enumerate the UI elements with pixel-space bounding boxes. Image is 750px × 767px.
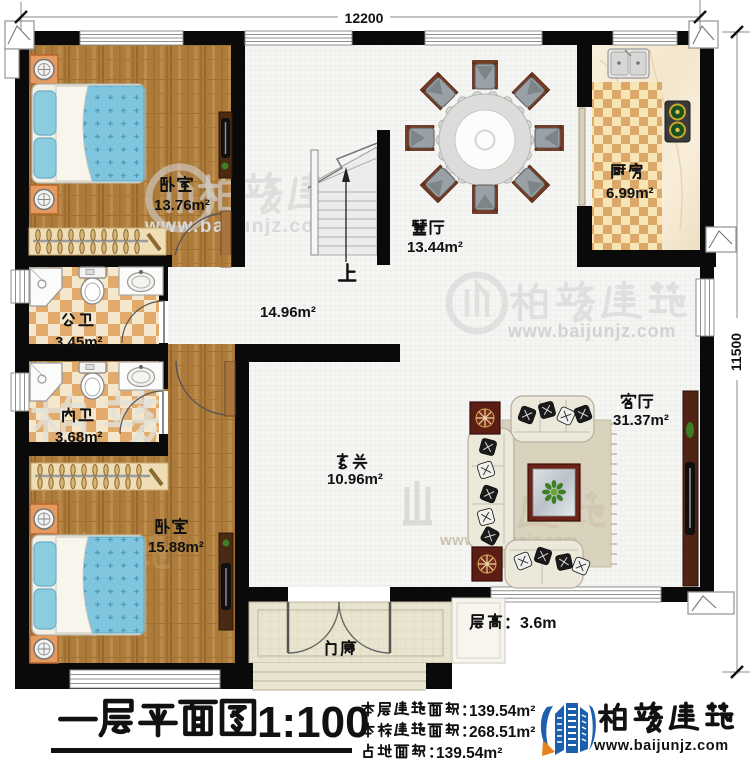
svg-text:13.44m²: 13.44m² <box>407 239 463 256</box>
svg-text:3.68m²: 3.68m² <box>55 429 103 446</box>
svg-text:3.45m²: 3.45m² <box>55 334 103 351</box>
svg-text:6.99m²: 6.99m² <box>606 185 654 202</box>
svg-text:11500: 11500 <box>728 333 744 371</box>
svg-text:12200: 12200 <box>345 10 384 26</box>
svg-text:15.88m²: 15.88m² <box>148 539 204 556</box>
svg-text:www.baijunjz.com: www.baijunjz.com <box>507 321 676 341</box>
svg-text:13.76m²: 13.76m² <box>154 197 210 214</box>
svg-text:：3.6m: ：3.6m <box>504 615 556 632</box>
svg-text:1:100: 1:100 <box>257 698 370 747</box>
svg-text:31.37m²: 31.37m² <box>613 412 669 429</box>
svg-text:268.51m²: 268.51m² <box>469 724 535 741</box>
svg-text:139.54m²: 139.54m² <box>436 745 502 762</box>
svg-text:10.96m²: 10.96m² <box>327 471 383 488</box>
svg-text:139.54m²: 139.54m² <box>469 703 535 720</box>
svg-text:14.96m²: 14.96m² <box>260 304 316 321</box>
svg-text:www.baijunjz.com: www.baijunjz.com <box>593 738 729 754</box>
